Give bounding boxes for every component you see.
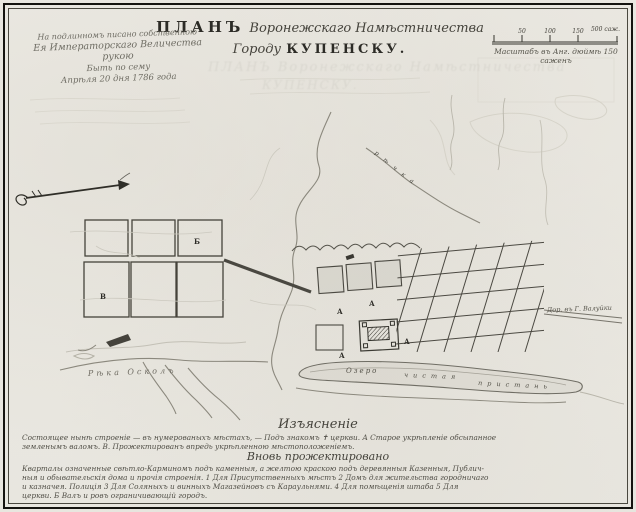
road-to-town [224,260,311,292]
scanned-map-page: ПЛАНЪ Воронежскаго Намѣстничества КУПЕНС… [0,0,636,512]
road-label-east: Дор. въ Г. Валуйки [546,304,612,314]
pencil-sketch-lines [70,148,316,310]
block-letter-a: А [337,307,343,316]
stream-label: рѣчка [373,150,421,189]
scale-end-label: 500 саж. [591,26,620,33]
legend-line-1: Состоящее нынѣ строеніе — въ нумерованых… [22,433,618,442]
terrain-contours [430,96,607,175]
scale-bar [492,35,618,44]
approval-inscription: На подлинномъ писано собственною Ея Импе… [17,27,219,88]
block-letter-a: А [339,351,345,360]
north-arrow-icon [16,173,130,205]
scale-tick-label: 150 [572,28,584,35]
town-square [316,325,343,350]
scale-tick-label: 50 [518,28,526,35]
town-street-grid [390,240,559,352]
legend-paragraph-line-1: Кварталы означенные свѣтло-Карминомъ под… [22,464,618,473]
lake-label-ozero: Озеро [346,367,378,375]
scale-caption: Масштабъ въ Анг. дюймѣ 150 саженъ [478,47,634,65]
block-letter-v: В [100,292,106,301]
title-region-script: Воронежскаго Намѣстничества [249,21,483,36]
river-label-oskol: Рѣка Осколъ [87,366,177,378]
block-letter-a: А [369,299,375,308]
block-letter-a: А [404,337,410,346]
town-squares [317,260,402,294]
bridge-mark [346,254,355,260]
title-gorodu-script: Городу [233,42,281,57]
proposed-blocks-grid [84,220,223,317]
block-letter-b: Б [194,237,200,246]
ridge-line [292,243,420,251]
legend-subheading: Вновь прожектировано [0,450,636,463]
legend-paragraph-line-3: и казначея. Полиція 3 Для Соляныхъ и вин… [22,482,618,491]
legend-paragraph-line-4: церкви. Б Валъ и ровъ ограничивающій гор… [22,491,618,500]
legend-paragraph-line-2: ныя и обывательскія дома и прочія строен… [22,473,618,482]
scale-tick-label: 100 [544,28,556,35]
citadel [359,319,399,351]
legend-heading: Изъясненіе [0,417,636,432]
title-city-name: КУПЕНСКУ. [286,42,407,57]
